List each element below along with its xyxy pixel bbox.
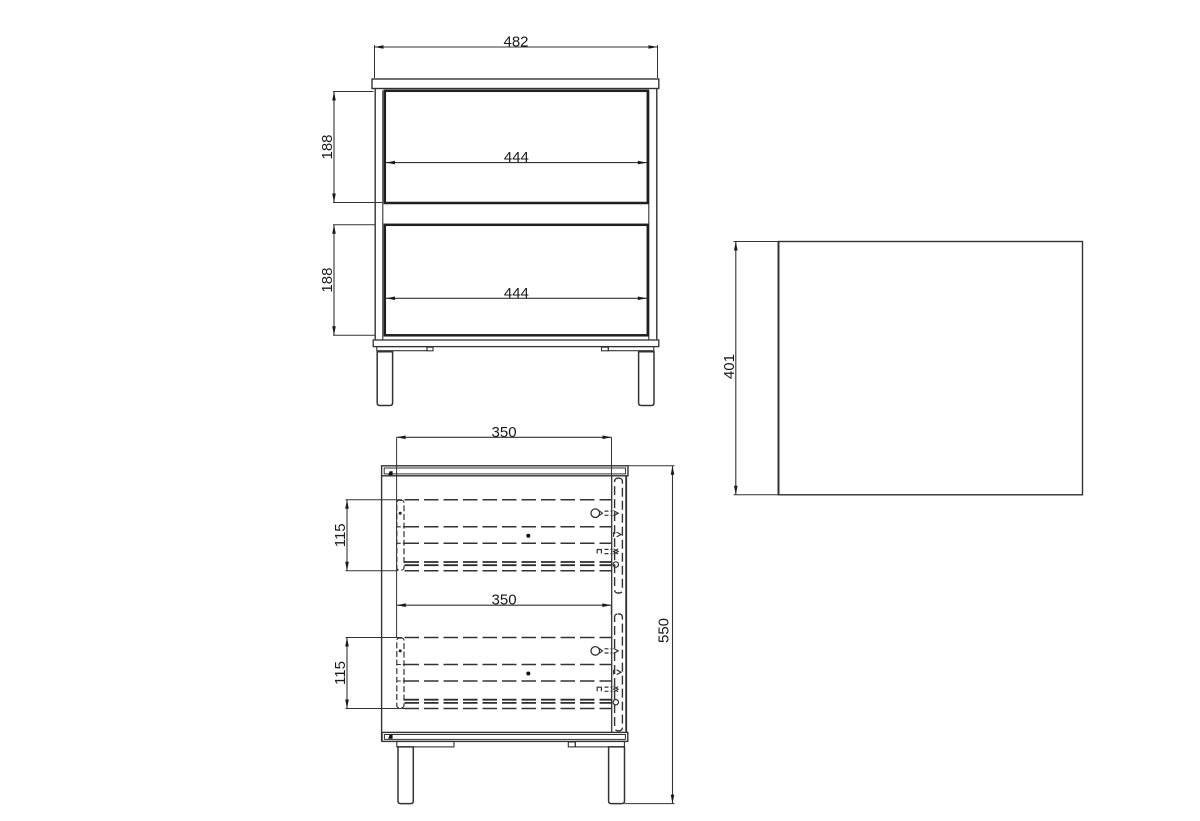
svg-text:401: 401 (721, 354, 738, 379)
svg-text:350: 350 (492, 424, 517, 441)
svg-text:482: 482 (503, 34, 528, 51)
svg-text:188: 188 (319, 268, 336, 293)
svg-text:115: 115 (332, 523, 349, 547)
svg-text:444: 444 (504, 149, 529, 166)
svg-text:115: 115 (332, 661, 349, 685)
svg-text:188: 188 (319, 134, 336, 159)
svg-text:444: 444 (504, 285, 529, 302)
svg-text:350: 350 (492, 592, 517, 609)
svg-text:550: 550 (656, 618, 673, 643)
